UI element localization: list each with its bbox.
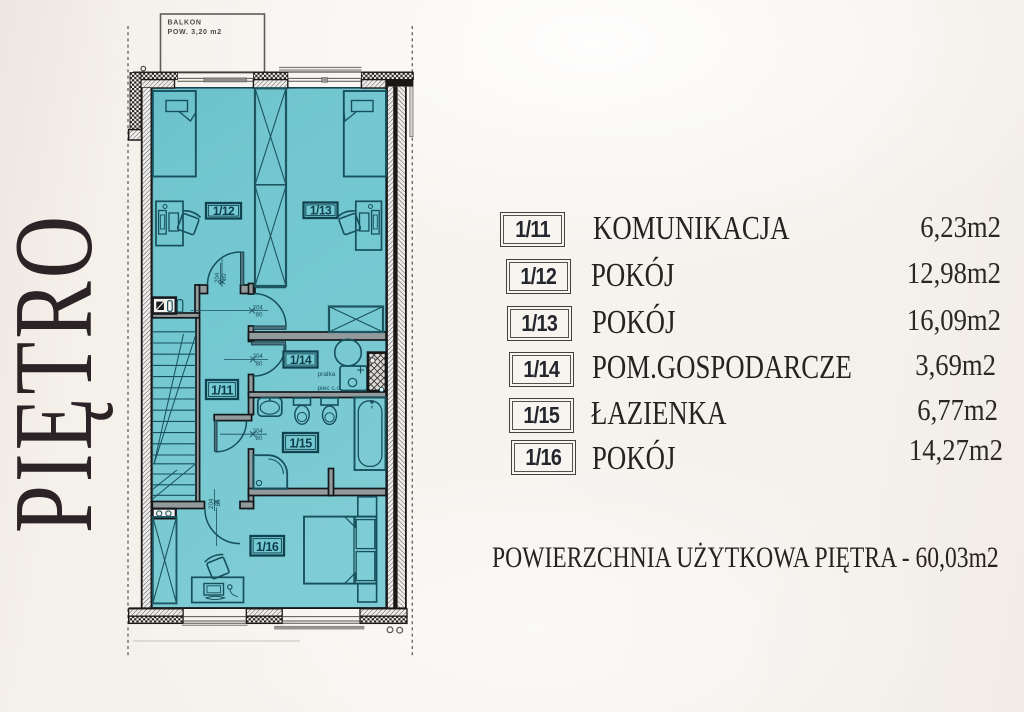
svg-text:POW. 3,20 m2: POW. 3,20 m2 (168, 29, 222, 36)
svg-text:80: 80 (256, 360, 263, 367)
svg-text:1/11: 1/11 (211, 384, 233, 398)
svg-text:80: 80 (256, 435, 263, 442)
svg-text:BALKON: BALKON (168, 20, 202, 27)
svg-text:pralka: pralka (318, 371, 336, 378)
svg-text:1/13: 1/13 (310, 204, 332, 218)
svg-text:80: 80 (256, 312, 263, 319)
svg-text:1/14: 1/14 (290, 353, 312, 367)
svg-text:piec c.o.: piec c.o. (318, 385, 343, 392)
svg-text:1/16: 1/16 (256, 540, 279, 554)
svg-text:1/15: 1/15 (289, 437, 312, 451)
svg-text:204: 204 (214, 272, 221, 283)
svg-text:1/12: 1/12 (213, 204, 235, 218)
